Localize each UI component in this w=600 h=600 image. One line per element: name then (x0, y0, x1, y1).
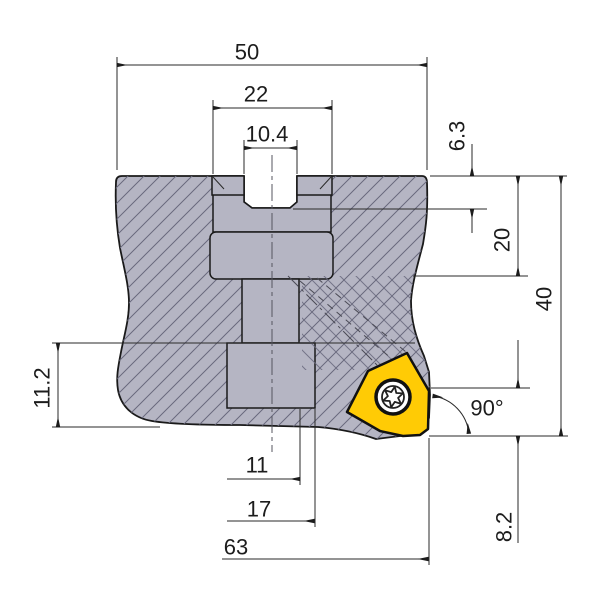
dim-label-11-2: 11.2 (30, 367, 55, 408)
dim-label-17: 17 (247, 497, 271, 522)
dim-label-6-3: 6.3 (445, 121, 470, 152)
bore-channel (242, 279, 299, 343)
technical-drawing-canvas: 50 22 10.4 6.3 20 40 11.2 90° 8.2 11 17 … (0, 0, 600, 600)
dimension-90deg-arc (433, 396, 469, 433)
dimension-50 (117, 57, 427, 170)
dim-label-40: 40 (532, 287, 557, 311)
dim-label-50: 50 (235, 40, 259, 65)
dim-label-11: 11 (246, 453, 269, 478)
dim-label-63: 63 (224, 535, 248, 560)
dim-label-20: 20 (490, 228, 515, 252)
bore-lower-recess (227, 343, 315, 408)
clamp-screw (376, 380, 410, 414)
dim-label-8-2: 8.2 (492, 512, 517, 543)
dim-label-22: 22 (244, 82, 268, 107)
dim-label-10-4: 10.4 (246, 122, 289, 147)
dim-label-90deg: 90° (470, 396, 503, 421)
cutter-section-drawing: 50 22 10.4 6.3 20 40 11.2 90° 8.2 11 17 … (0, 0, 600, 600)
